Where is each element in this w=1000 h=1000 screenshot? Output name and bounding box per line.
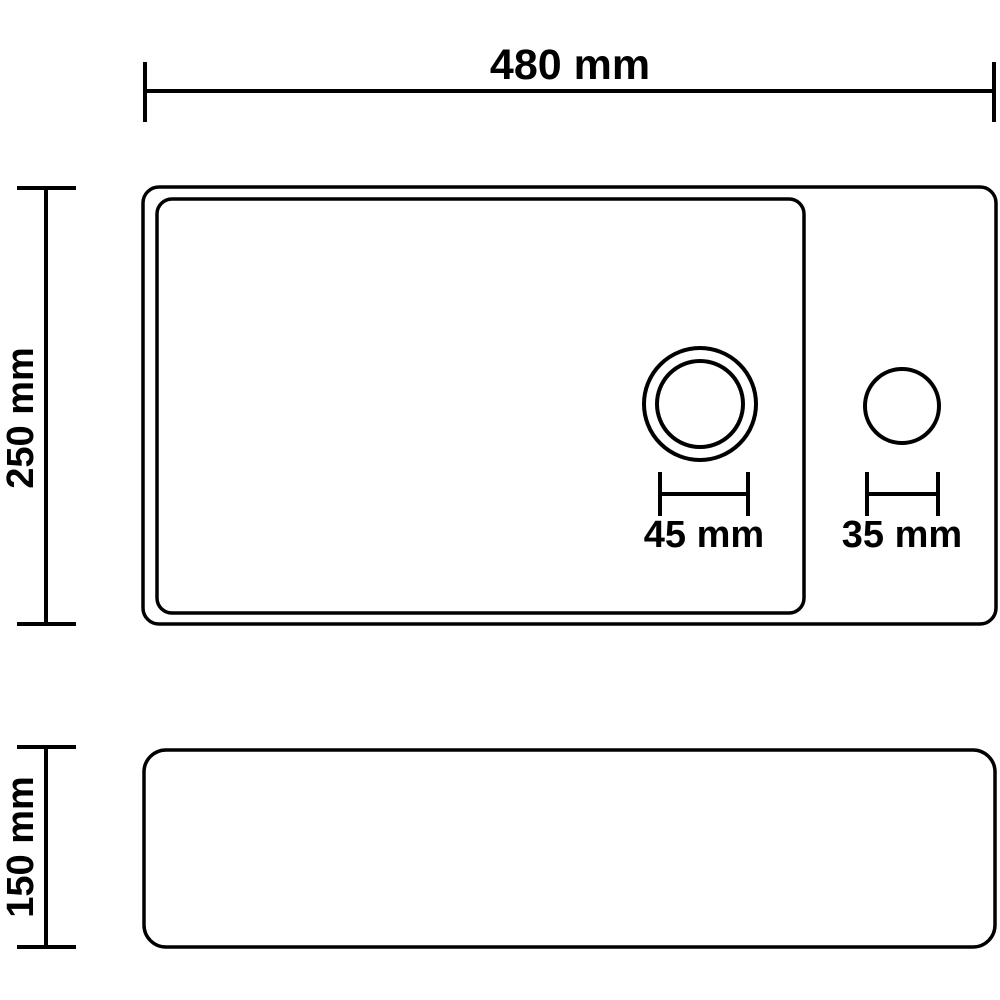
tap-dimension-label: 35 mm	[842, 514, 962, 556]
width-dimension-label: 480 mm	[490, 41, 650, 89]
drain-hole-dimension: 45 mm	[644, 472, 764, 556]
width-dimension: 480 mm	[145, 41, 994, 122]
basin-top-view	[143, 187, 996, 624]
drain-hole-outer-circle	[644, 348, 756, 460]
drain-hole-inner-circle	[657, 361, 743, 447]
depth-dimension: 250 mm	[0, 188, 76, 624]
height-dimension-label: 150 mm	[0, 776, 42, 918]
basin-side-profile	[144, 750, 995, 947]
dimension-drawing: 480 mm 250 mm 45 mm	[0, 0, 1000, 1000]
drain-dimension-label: 45 mm	[644, 514, 764, 556]
tap-hole-circle	[865, 369, 939, 443]
height-dimension: 150 mm	[0, 747, 76, 947]
basin-side-view	[144, 750, 995, 947]
basin-outer-rim	[143, 187, 996, 624]
depth-dimension-label: 250 mm	[0, 347, 42, 489]
drawing-canvas: 480 mm 250 mm 45 mm	[0, 0, 1000, 1000]
tap-hole-dimension: 35 mm	[842, 472, 962, 556]
